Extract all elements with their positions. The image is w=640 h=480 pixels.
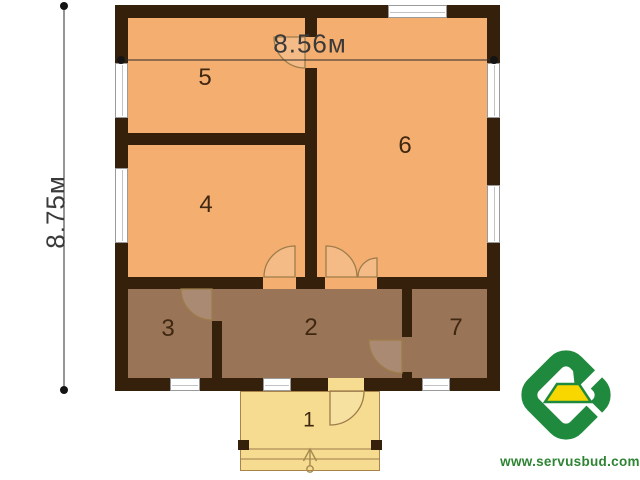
room-label-7: 7 xyxy=(449,316,462,340)
wall-corridor-left xyxy=(128,277,263,289)
wall-mid xyxy=(305,68,317,277)
website-url: www.servusbud.com xyxy=(500,454,640,469)
wall-room5-room4 xyxy=(128,133,317,145)
room-label-2: 2 xyxy=(304,316,317,340)
room-label-1: 1 xyxy=(303,410,315,431)
window-left-2 xyxy=(115,168,128,243)
width-dimension-label: 8.56м xyxy=(273,29,346,60)
wall-room3-room2 xyxy=(212,321,222,378)
servusbud-logo xyxy=(503,338,637,456)
logo-hook xyxy=(584,383,608,407)
porch-doorway xyxy=(328,378,364,391)
height-dimension-label: 8.75м xyxy=(41,175,72,248)
room-label-4: 4 xyxy=(199,193,212,217)
wall-room2-room7-stub xyxy=(402,372,412,378)
window-right-1 xyxy=(487,63,500,118)
logo-roof-icon xyxy=(545,384,591,402)
wall-room2-room7 xyxy=(402,289,412,337)
window-bottom-1 xyxy=(170,378,200,391)
room-label-3: 3 xyxy=(161,317,174,341)
floor-plan: 8.56м 8.75м 5 6 4 3 2 7 1 www.servusbud.… xyxy=(0,0,640,480)
window-bottom-2 xyxy=(263,378,291,391)
wall-corridor-right xyxy=(377,277,487,289)
room-label-5: 5 xyxy=(198,66,211,90)
window-bottom-3 xyxy=(422,378,450,391)
room-label-6: 6 xyxy=(398,134,411,158)
wall-corridor-mid xyxy=(296,277,325,289)
floor-plan-page: { "dimensions": { "width_label": "8.56м"… xyxy=(0,0,640,480)
window-top xyxy=(388,5,447,18)
window-right-2 xyxy=(487,185,500,243)
window-left-1 xyxy=(115,63,128,118)
